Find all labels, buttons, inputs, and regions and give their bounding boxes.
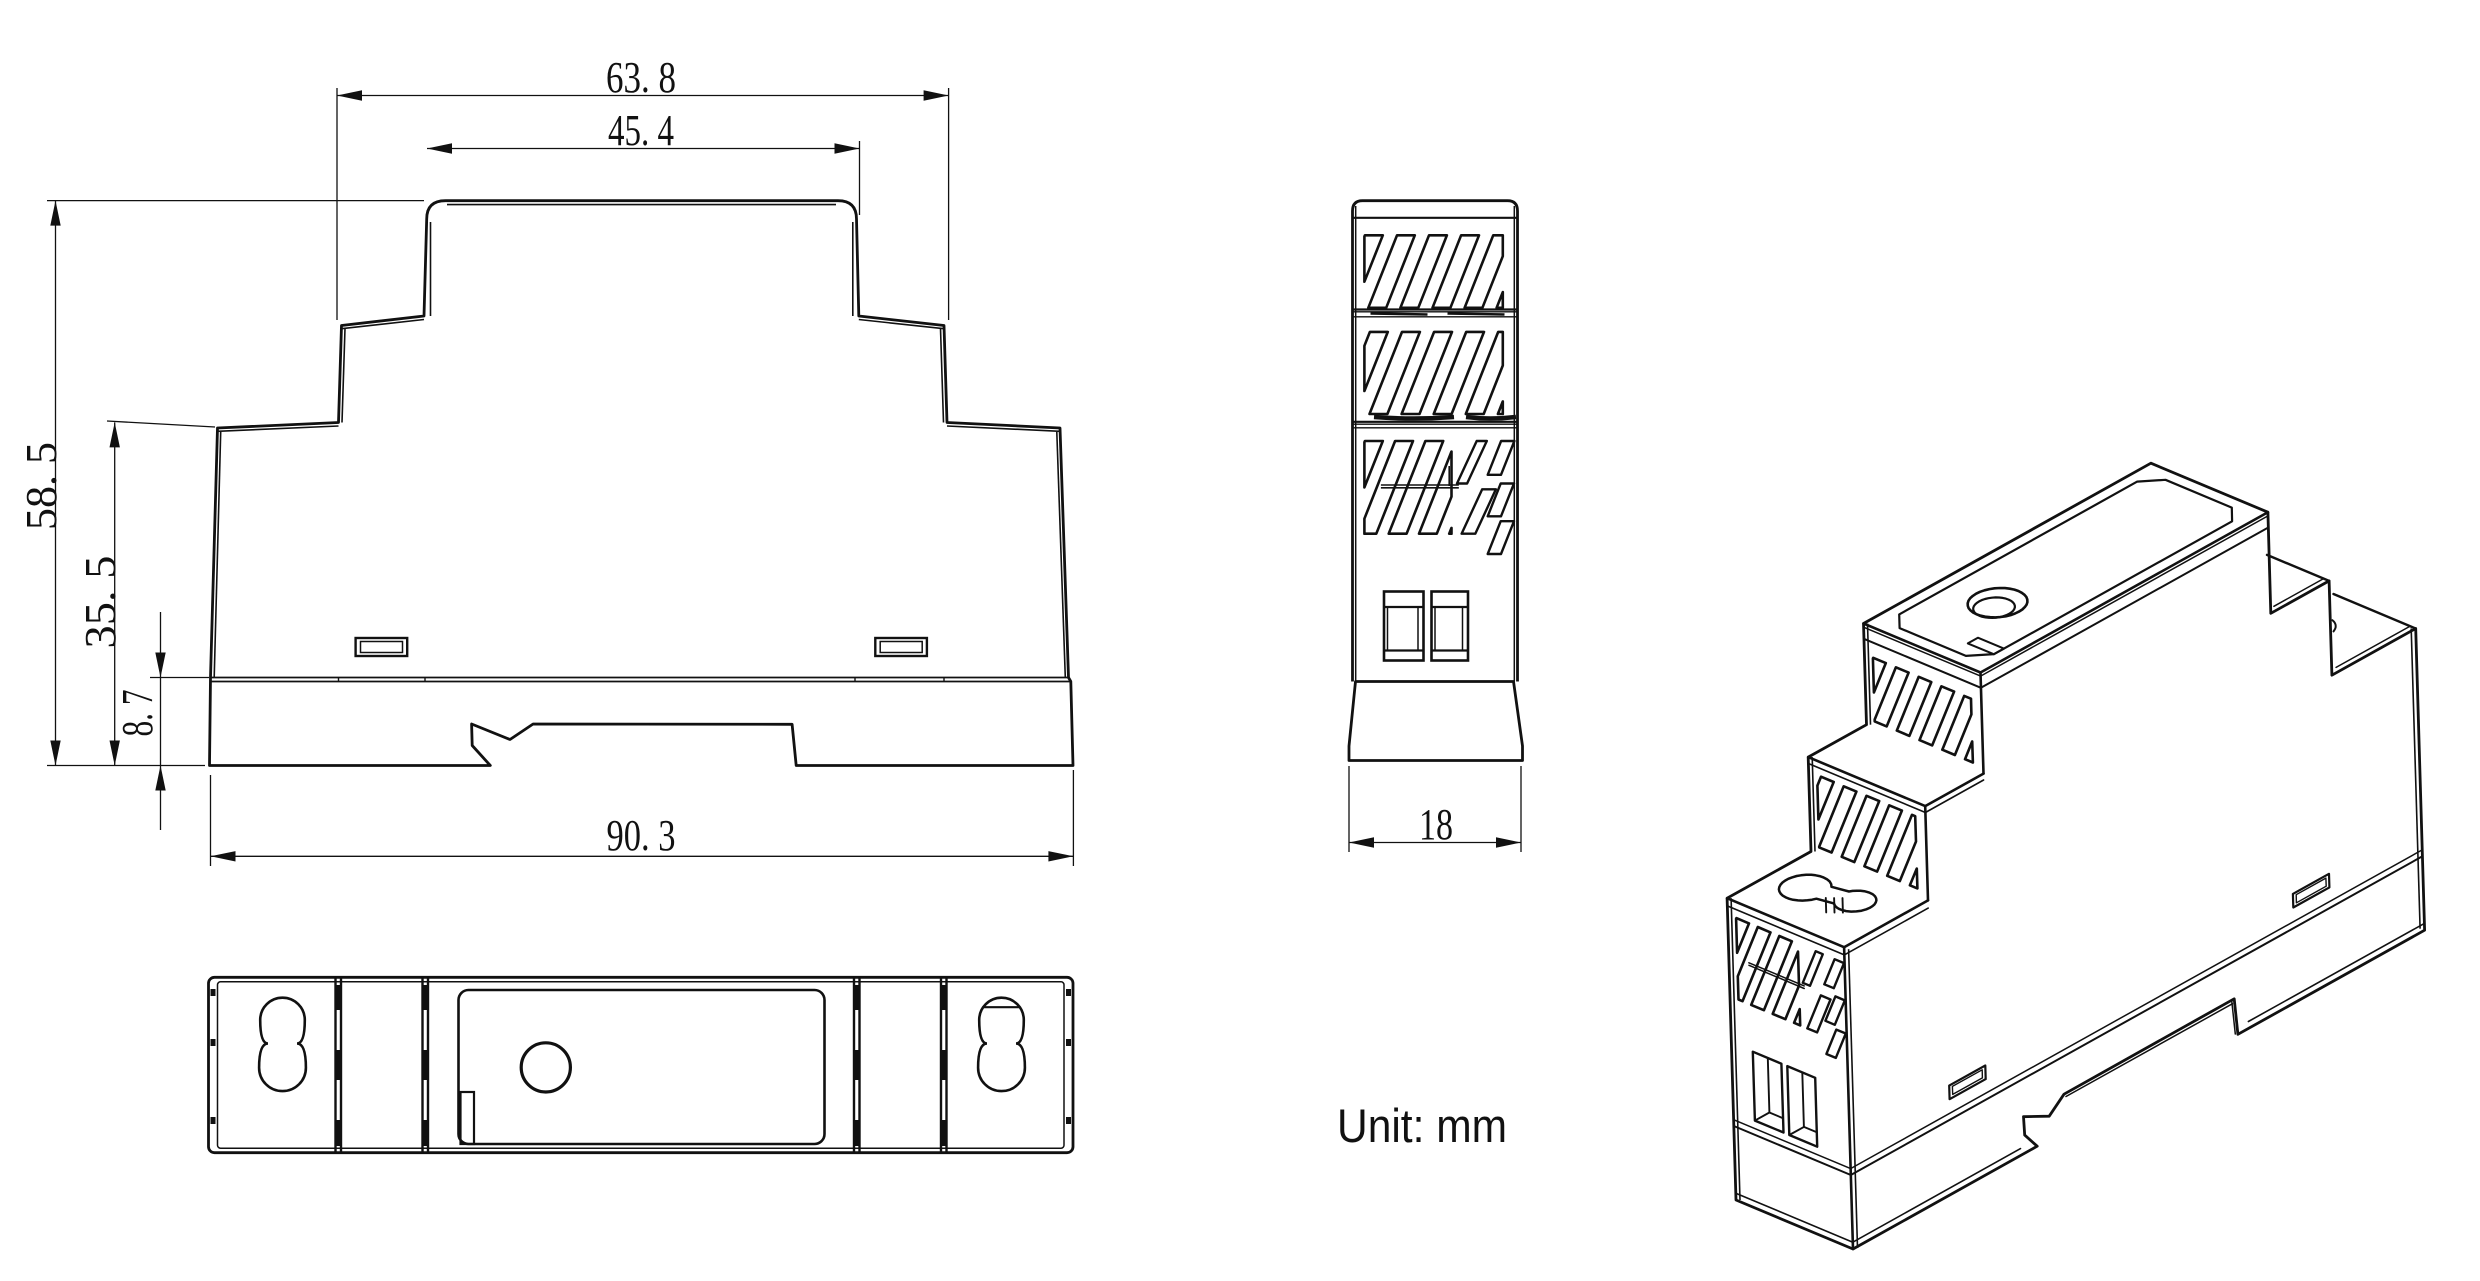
svg-text:63. 8: 63. 8 — [606, 53, 676, 102]
svg-text:90. 3: 90. 3 — [607, 811, 676, 860]
svg-text:45. 4: 45. 4 — [608, 106, 674, 155]
svg-text:35. 5: 35. 5 — [76, 556, 125, 649]
svg-text:18: 18 — [1419, 800, 1453, 849]
svg-text:8. 7: 8. 7 — [113, 690, 162, 737]
svg-text:Unit: mm: Unit: mm — [1337, 1099, 1507, 1152]
svg-text:58. 5: 58. 5 — [17, 442, 66, 530]
